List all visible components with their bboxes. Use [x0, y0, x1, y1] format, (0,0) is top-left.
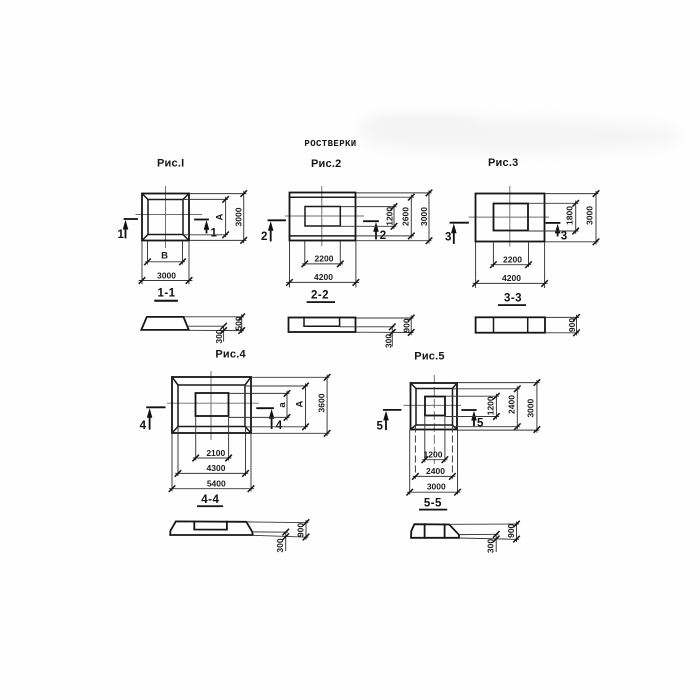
svg-text:5-5: 5-5 [424, 498, 442, 510]
svg-text:3: 3 [445, 232, 451, 244]
svg-text:3000: 3000 [526, 398, 536, 417]
svg-text:Рис.5: Рис.5 [414, 351, 444, 363]
svg-text:3000: 3000 [585, 206, 595, 225]
svg-text:3000: 3000 [234, 207, 244, 226]
svg-text:Рис.2: Рис.2 [311, 158, 341, 170]
svg-text:1-1: 1-1 [157, 288, 175, 300]
svg-text:3-3: 3-3 [504, 292, 522, 304]
svg-text:3: 3 [561, 231, 567, 243]
svg-text:Рис.4: Рис.4 [215, 349, 246, 361]
svg-text:4200: 4200 [314, 272, 333, 282]
svg-text:300: 300 [275, 538, 285, 552]
svg-text:900: 900 [402, 318, 412, 332]
svg-text:4300: 4300 [207, 463, 226, 473]
svg-text:300: 300 [214, 329, 224, 343]
svg-text:900: 900 [567, 318, 577, 332]
svg-text:1: 1 [211, 228, 218, 240]
svg-text:a: a [277, 402, 288, 408]
svg-text:2400: 2400 [426, 466, 445, 476]
svg-text:900: 900 [506, 523, 516, 537]
svg-text:5400: 5400 [207, 478, 226, 488]
svg-text:4: 4 [140, 420, 147, 432]
svg-text:РОСТВЕРКИ: РОСТВЕРКИ [304, 139, 356, 149]
svg-text:2-2: 2-2 [311, 289, 329, 301]
svg-text:2: 2 [261, 231, 267, 243]
svg-text:1200: 1200 [486, 396, 496, 415]
svg-text:1800: 1800 [565, 206, 575, 225]
svg-text:5: 5 [477, 418, 484, 430]
svg-text:3000: 3000 [427, 482, 446, 492]
svg-text:3000: 3000 [419, 207, 429, 226]
svg-text:2200: 2200 [315, 254, 334, 264]
svg-text:2100: 2100 [206, 448, 225, 458]
svg-text:500: 500 [233, 316, 243, 330]
svg-text:Рис.3: Рис.3 [488, 157, 518, 169]
svg-text:4: 4 [276, 420, 283, 432]
svg-text:900: 900 [296, 523, 306, 537]
svg-text:300: 300 [486, 539, 496, 553]
svg-text:4-4: 4-4 [201, 494, 219, 506]
svg-text:3600: 3600 [317, 393, 327, 412]
svg-text:Рис.I: Рис.I [157, 158, 184, 170]
svg-text:A: A [215, 213, 226, 220]
svg-text:1200: 1200 [424, 449, 443, 459]
svg-text:2400: 2400 [507, 395, 517, 414]
svg-text:300: 300 [383, 334, 393, 348]
svg-text:5: 5 [377, 421, 384, 433]
svg-text:A: A [295, 400, 306, 407]
svg-text:B: B [161, 251, 168, 262]
svg-text:1200: 1200 [385, 207, 395, 226]
svg-text:2200: 2200 [503, 254, 522, 264]
svg-text:2600: 2600 [401, 207, 411, 226]
svg-text:1: 1 [118, 229, 125, 241]
svg-text:4200: 4200 [502, 273, 521, 283]
svg-text:3000: 3000 [157, 271, 176, 281]
